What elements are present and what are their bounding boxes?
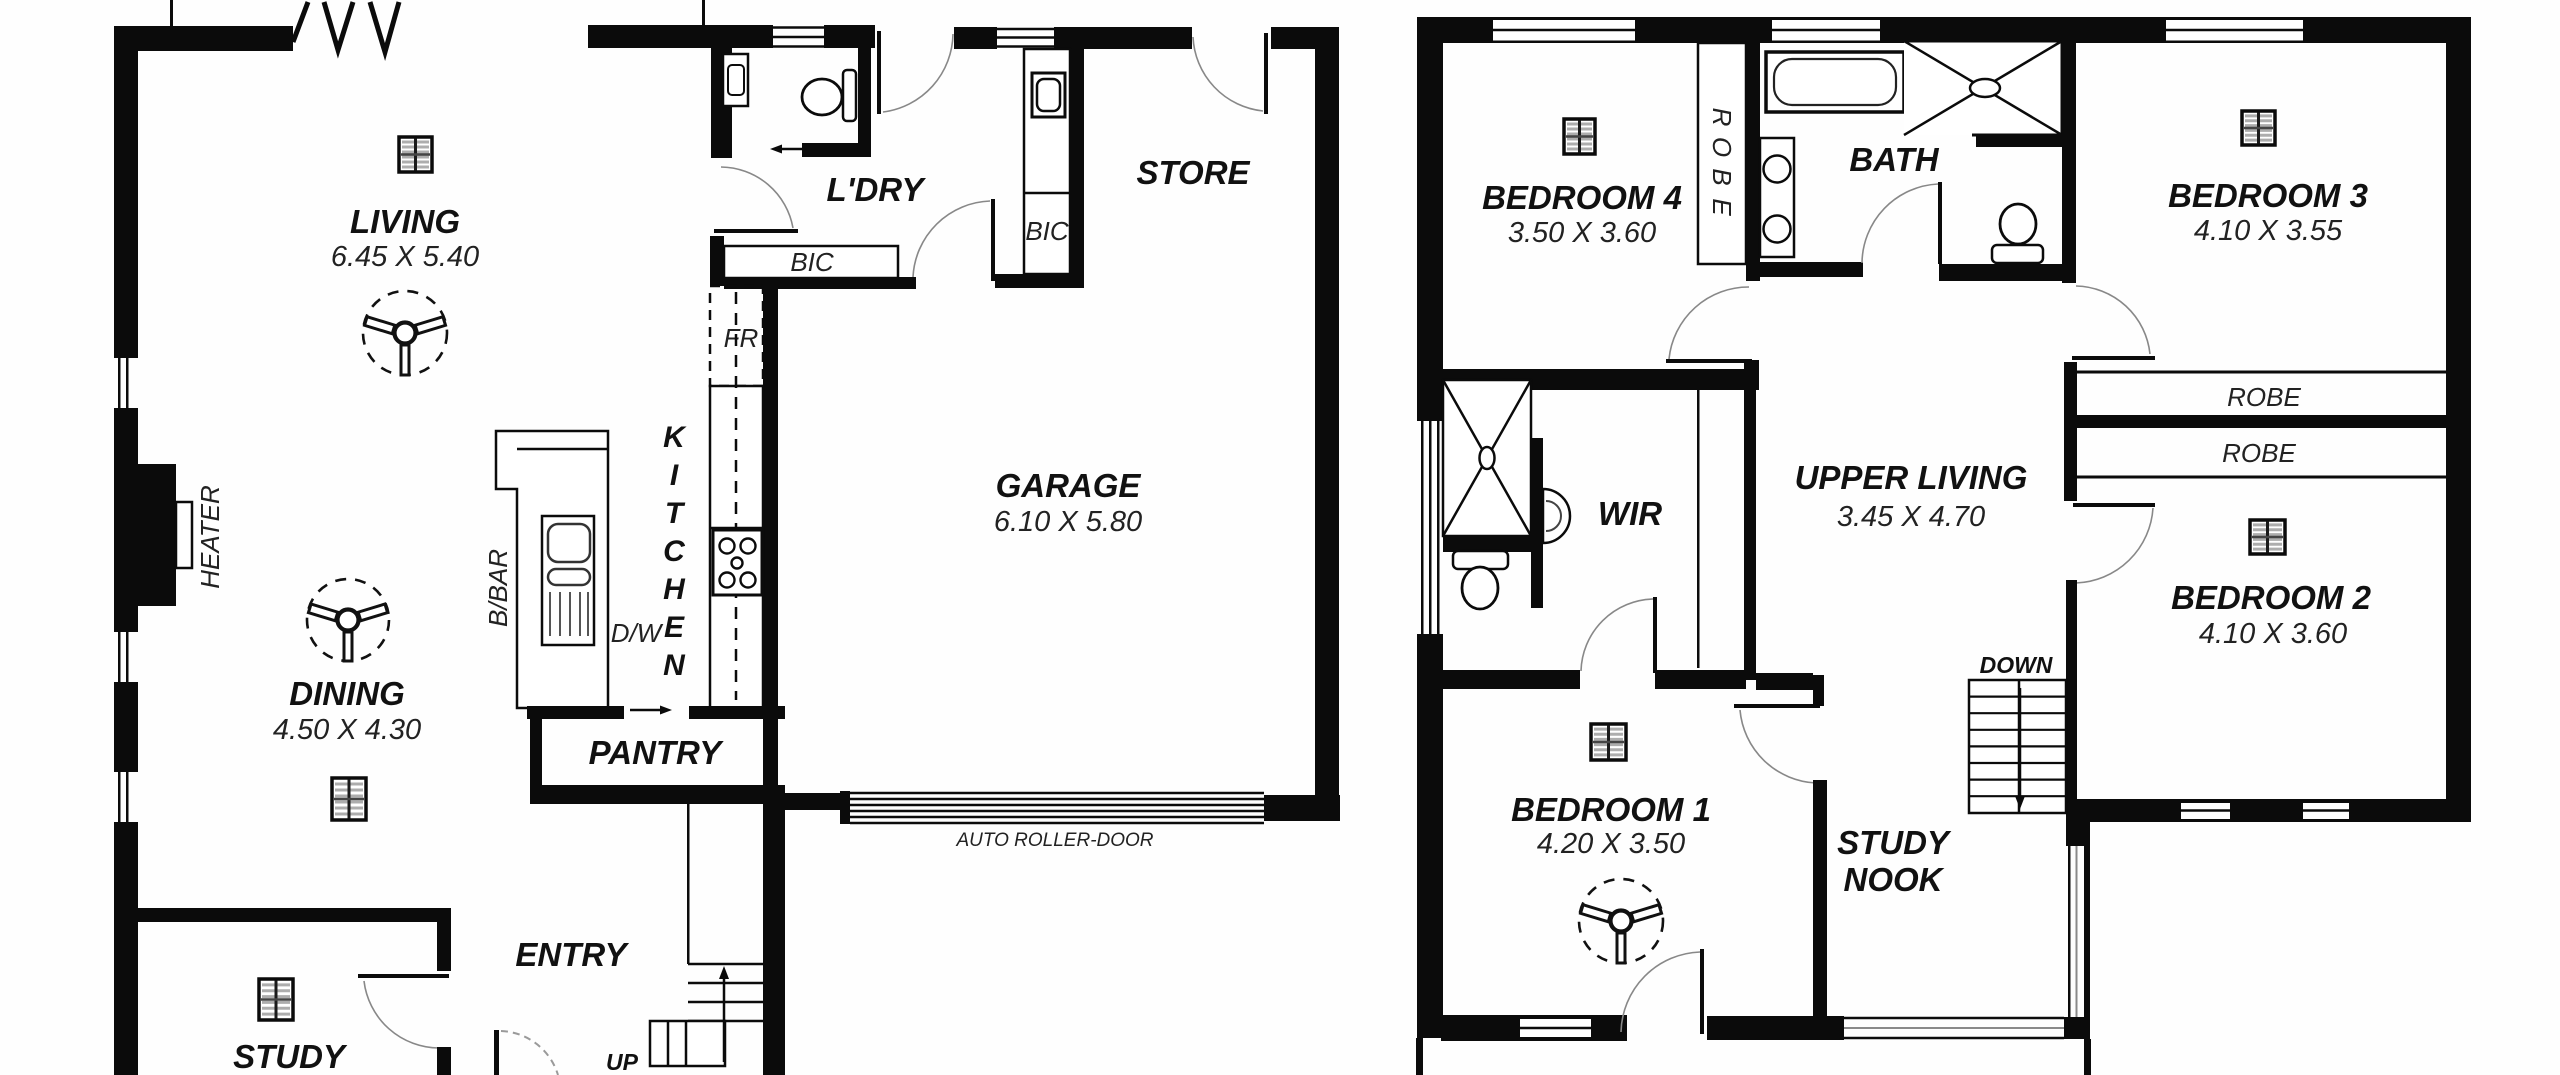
svg-text:N: N [663, 649, 686, 682]
svg-text:H: H [663, 573, 686, 606]
svg-text:B/BAR: B/BAR [483, 549, 513, 627]
svg-text:R: R [1707, 108, 1737, 127]
svg-text:BEDROOM 2: BEDROOM 2 [2171, 579, 2372, 616]
svg-text:ROBE: ROBE [2227, 382, 2301, 412]
svg-text:UPPER LIVING: UPPER LIVING [1795, 459, 2028, 496]
svg-text:GARAGE: GARAGE [996, 467, 1142, 504]
svg-text:STUDY: STUDY [1837, 824, 1952, 861]
svg-text:K: K [663, 421, 687, 454]
svg-text:BEDROOM 3: BEDROOM 3 [2168, 177, 2368, 214]
svg-text:ENTRY: ENTRY [515, 936, 629, 973]
svg-text:STORE: STORE [1136, 154, 1250, 191]
svg-text:C: C [663, 535, 686, 568]
svg-text:DOWN: DOWN [1980, 652, 2053, 678]
svg-text:3.45 X 4.70: 3.45 X 4.70 [1837, 501, 1985, 533]
svg-text:AUTO ROLLER-DOOR: AUTO ROLLER-DOOR [955, 830, 1153, 851]
svg-text:E: E [664, 611, 685, 644]
svg-text:BATH: BATH [1849, 141, 1939, 178]
svg-text:I: I [670, 459, 679, 492]
svg-text:L'DRY: L'DRY [826, 171, 926, 208]
svg-text:NOOK: NOOK [1844, 861, 1945, 898]
svg-text:4.10 X 3.60: 4.10 X 3.60 [2199, 618, 2347, 650]
svg-text:STUDY: STUDY [233, 1038, 348, 1075]
svg-text:HEATER: HEATER [195, 485, 225, 589]
svg-text:WIR: WIR [1598, 495, 1662, 532]
svg-text:DINING: DINING [289, 675, 405, 712]
svg-text:B: B [1707, 168, 1737, 185]
svg-text:LIVING: LIVING [350, 203, 460, 240]
svg-text:E: E [1707, 198, 1737, 216]
svg-text:6.45 X 5.40: 6.45 X 5.40 [331, 241, 479, 273]
svg-text:BEDROOM 4: BEDROOM 4 [1482, 179, 1682, 216]
svg-text:O: O [1707, 137, 1737, 157]
svg-text:T: T [665, 497, 686, 530]
svg-text:ROBE: ROBE [2222, 438, 2296, 468]
svg-text:4.20 X 3.50: 4.20 X 3.50 [1537, 828, 1685, 860]
svg-text:UP: UP [606, 1049, 639, 1075]
svg-text:PANTRY: PANTRY [589, 734, 725, 771]
svg-text:4.50 X 4.30: 4.50 X 4.30 [273, 714, 421, 746]
svg-text:FR: FR [724, 323, 759, 353]
svg-text:BIC: BIC [790, 247, 834, 277]
svg-text:4.10 X 3.55: 4.10 X 3.55 [2194, 215, 2343, 247]
svg-text:BEDROOM 1: BEDROOM 1 [1511, 791, 1711, 828]
svg-text:D/W: D/W [611, 618, 664, 648]
svg-text:6.10 X 5.80: 6.10 X 5.80 [994, 506, 1142, 538]
svg-text:3.50 X 3.60: 3.50 X 3.60 [1508, 217, 1656, 249]
svg-text:BIC: BIC [1025, 216, 1069, 246]
